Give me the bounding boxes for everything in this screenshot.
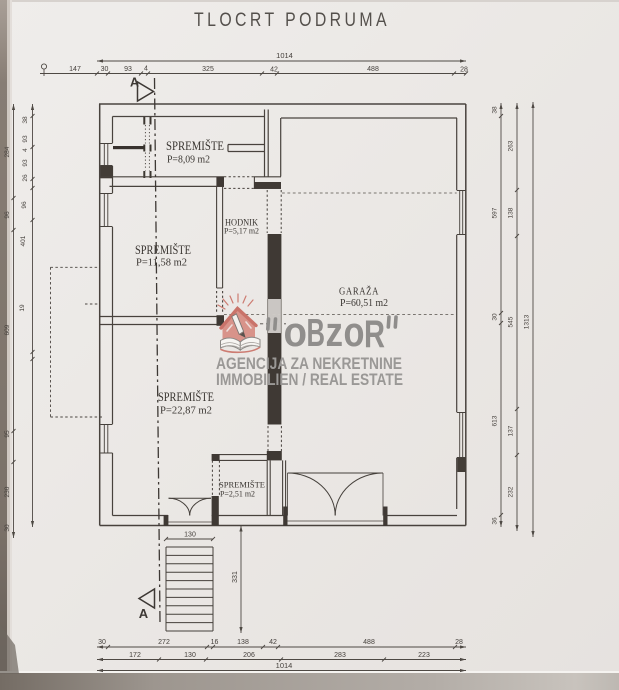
svg-text:1313: 1313 [524, 314, 531, 329]
svg-text:232: 232 [508, 486, 515, 497]
svg-text:147: 147 [69, 66, 81, 73]
svg-text:42: 42 [270, 67, 278, 74]
svg-text:GARAŽA: GARAŽA [339, 286, 379, 298]
svg-text:TLOCRT PODRUMA: TLOCRT PODRUMA [194, 9, 390, 31]
svg-text:38: 38 [492, 106, 499, 114]
svg-text:SPREMIŠTE: SPREMIŠTE [219, 481, 265, 490]
svg-text:96: 96 [4, 211, 11, 219]
svg-text:284: 284 [4, 146, 11, 157]
svg-text:488: 488 [367, 66, 379, 73]
svg-text:P=11,58 m2: P=11,58 m2 [136, 257, 187, 269]
svg-text:A: A [139, 606, 149, 621]
svg-text:325: 325 [202, 66, 214, 73]
svg-text:P=22,87 m2: P=22,87 m2 [160, 405, 212, 417]
svg-text:138: 138 [237, 639, 249, 646]
svg-text:P=8,09 m2: P=8,09 m2 [167, 154, 210, 166]
svg-text:SPREMIŠTE: SPREMIŠTE [166, 139, 224, 153]
svg-text:609: 609 [4, 324, 11, 335]
svg-text:4: 4 [144, 66, 148, 73]
svg-text:230: 230 [4, 486, 11, 497]
svg-text:19: 19 [19, 304, 26, 312]
svg-text:30: 30 [4, 524, 11, 532]
svg-text:1014: 1014 [276, 661, 293, 670]
svg-text:o: o [284, 308, 308, 355]
svg-text:30: 30 [98, 639, 106, 646]
svg-text:613: 613 [492, 415, 499, 426]
svg-text:SPREMIŠTE: SPREMIŠTE [135, 243, 191, 257]
svg-text:93: 93 [22, 135, 29, 143]
svg-text:o: o [344, 308, 365, 355]
svg-text:138: 138 [508, 207, 515, 218]
svg-text:545: 545 [508, 316, 515, 327]
svg-text:38: 38 [22, 116, 29, 124]
svg-text:P=2,51 m2: P=2,51 m2 [220, 490, 255, 499]
svg-text:130: 130 [184, 532, 196, 539]
svg-text:95: 95 [4, 430, 11, 438]
svg-text:263: 263 [508, 140, 515, 151]
svg-text:130: 130 [184, 652, 196, 659]
svg-text:331: 331 [232, 571, 239, 583]
svg-text:597: 597 [492, 207, 499, 218]
svg-text:30: 30 [101, 66, 109, 73]
svg-text:B: B [307, 312, 326, 355]
svg-text:36: 36 [492, 517, 499, 525]
svg-text:283: 283 [334, 652, 346, 659]
svg-text:488: 488 [363, 639, 375, 646]
svg-text:223: 223 [418, 652, 430, 659]
svg-text:16: 16 [211, 639, 219, 646]
svg-text:93: 93 [22, 159, 29, 167]
svg-text:93: 93 [124, 66, 132, 73]
svg-text:42: 42 [269, 639, 277, 646]
svg-text:96: 96 [21, 201, 28, 209]
svg-text:A: A [130, 76, 139, 90]
svg-text:28: 28 [455, 639, 463, 646]
svg-text:172: 172 [129, 652, 141, 659]
svg-text:28: 28 [460, 67, 468, 74]
svg-text:272: 272 [158, 639, 170, 646]
svg-text:4: 4 [22, 148, 29, 152]
svg-text:z: z [326, 308, 344, 355]
svg-text:26: 26 [22, 174, 29, 182]
svg-text:R: R [364, 313, 385, 356]
svg-text:1014: 1014 [276, 51, 293, 60]
svg-text:137: 137 [508, 425, 515, 436]
svg-text:P=5,17 m2: P=5,17 m2 [224, 227, 259, 236]
svg-text:IMMOBILIEN / REAL ESTATE: IMMOBILIEN / REAL ESTATE [216, 370, 403, 389]
svg-text:SPREMIŠTE: SPREMIŠTE [158, 390, 214, 404]
svg-text:206: 206 [243, 652, 255, 659]
svg-text:30: 30 [492, 313, 499, 321]
svg-text:401: 401 [20, 235, 27, 246]
